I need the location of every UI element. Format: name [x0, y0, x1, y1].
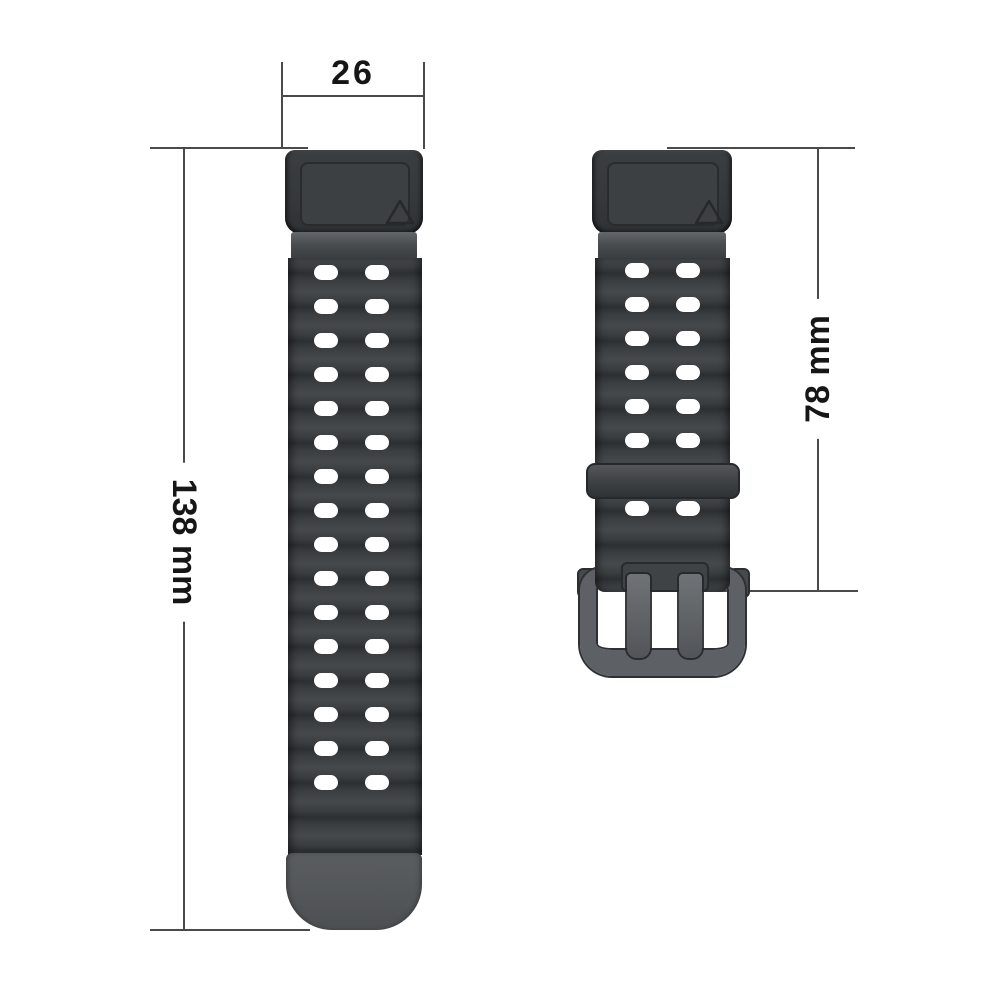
- width-extension-line-left: [281, 62, 283, 149]
- strap-hole: [314, 401, 338, 416]
- long-length-dimension-label: 138 mm: [157, 463, 211, 622]
- buckle-prong-left: [627, 574, 650, 658]
- strap-hole: [676, 365, 700, 380]
- short-length-extension-line-top: [667, 147, 855, 149]
- strap-hole: [365, 469, 389, 484]
- strap-hole: [365, 435, 389, 450]
- watch-lug-connector-right: [592, 150, 732, 234]
- watch-lug-connector-left: [285, 150, 423, 234]
- strap-hole: [676, 399, 700, 414]
- strap-hole: [314, 741, 338, 756]
- strap-hole: [314, 435, 338, 450]
- strap-hole: [625, 501, 649, 516]
- diagram-canvas: 26 138 mm 78 mm: [0, 0, 1000, 1000]
- strap-hole: [365, 639, 389, 654]
- strap-hole: [365, 401, 389, 416]
- strap-hole: [365, 537, 389, 552]
- strap-hole: [676, 331, 700, 346]
- strap-hole: [314, 571, 338, 586]
- strap-hole: [314, 265, 338, 280]
- strap-hole: [625, 263, 649, 278]
- strap-hole: [676, 433, 700, 448]
- strap-hole: [676, 501, 700, 516]
- strap-hole: [365, 333, 389, 348]
- strap-hole: [365, 503, 389, 518]
- strap-hole: [365, 299, 389, 314]
- strap-hole: [314, 367, 338, 382]
- strap-hole: [365, 741, 389, 756]
- long-length-extension-line-top: [150, 147, 308, 149]
- strap-hole: [314, 673, 338, 688]
- strap-hole: [365, 673, 389, 688]
- width-dimension-label: 26: [325, 54, 381, 92]
- short-length-dimension-label: 78 mm: [791, 299, 845, 439]
- strap-hole: [314, 537, 338, 552]
- long-strap-tip: [286, 853, 422, 930]
- long-length-extension-line-bottom: [150, 929, 310, 931]
- strap-hole: [625, 297, 649, 312]
- long-strap-body: [288, 258, 422, 855]
- width-dimension-line: [281, 95, 425, 97]
- strap-hole: [625, 433, 649, 448]
- strap-hole: [314, 707, 338, 722]
- strap-hole: [314, 469, 338, 484]
- strap-hole: [625, 365, 649, 380]
- keeper-loop: [586, 463, 740, 499]
- strap-hole: [365, 265, 389, 280]
- strap-hole: [314, 775, 338, 790]
- strap-hole: [314, 639, 338, 654]
- strap-hole: [314, 333, 338, 348]
- width-extension-line-right: [423, 62, 425, 149]
- strap-hole: [365, 605, 389, 620]
- triangle-mark-icon: [694, 199, 724, 225]
- triangle-mark-icon: [385, 199, 415, 225]
- strap-hole: [365, 775, 389, 790]
- strap-hole: [365, 707, 389, 722]
- strap-hole: [314, 605, 338, 620]
- short-strap-body: [595, 258, 730, 592]
- strap-hole: [676, 297, 700, 312]
- strap-hole: [676, 263, 700, 278]
- strap-hole: [625, 331, 649, 346]
- buckle-prong-right: [679, 574, 702, 658]
- strap-hole: [314, 503, 338, 518]
- strap-hole: [625, 399, 649, 414]
- strap-hole: [365, 367, 389, 382]
- strap-neck-right: [598, 232, 726, 260]
- strap-neck-left: [291, 232, 417, 260]
- strap-hole: [365, 571, 389, 586]
- strap-hole: [314, 299, 338, 314]
